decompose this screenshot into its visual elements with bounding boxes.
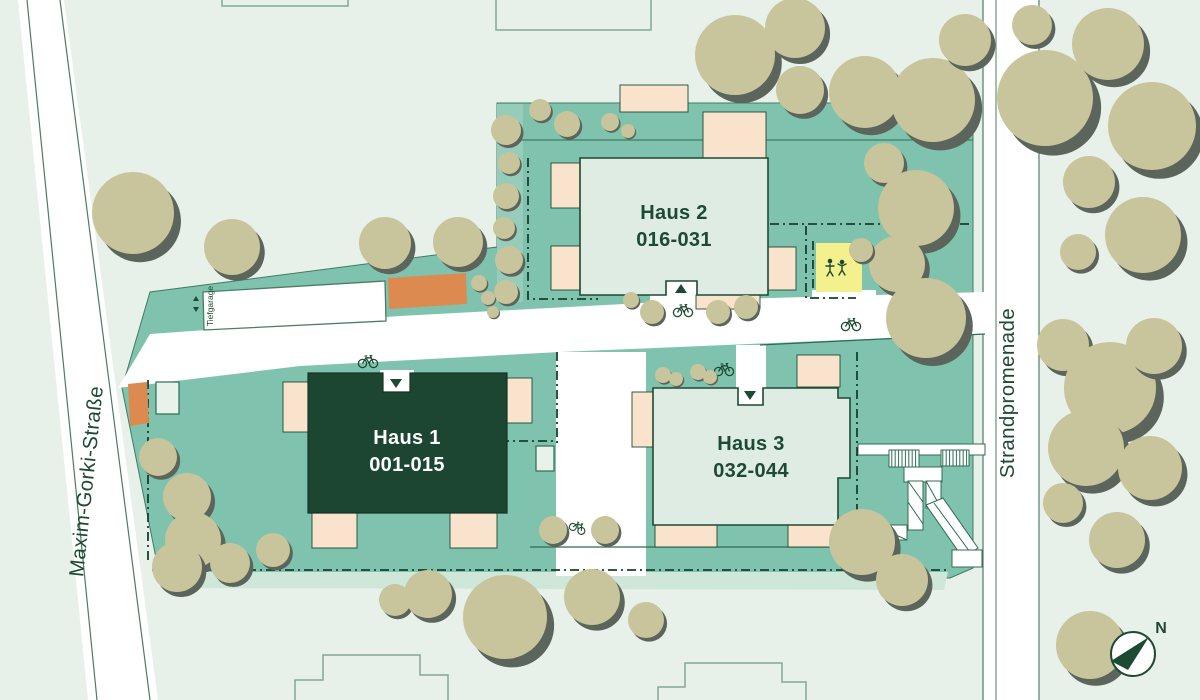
building-units: 001-015 (369, 454, 445, 476)
stairs-icon (889, 450, 919, 467)
garage-entrance-marker (388, 273, 467, 309)
building-units: 016-031 (636, 229, 712, 251)
building-name: Haus 3 (717, 433, 784, 455)
site-south-verge (155, 572, 948, 590)
street-name-east: Strandpromenade (996, 308, 1019, 478)
site-plan-svg: Maxim-Gorki-Straße Strandpromenade (0, 0, 1200, 700)
utility-box (536, 446, 554, 471)
garage-label: Tiefgarage (205, 286, 215, 327)
building-units: 032-044 (713, 460, 789, 482)
north-label: N (1155, 620, 1167, 637)
building-name: Haus 2 (640, 202, 707, 224)
stairs-icon (941, 450, 969, 466)
site-plan: Maxim-Gorki-Straße Strandpromenade (0, 0, 1200, 700)
building-name: Haus 1 (373, 427, 440, 449)
utility-box (156, 382, 179, 414)
garage-marker-west (128, 382, 149, 426)
